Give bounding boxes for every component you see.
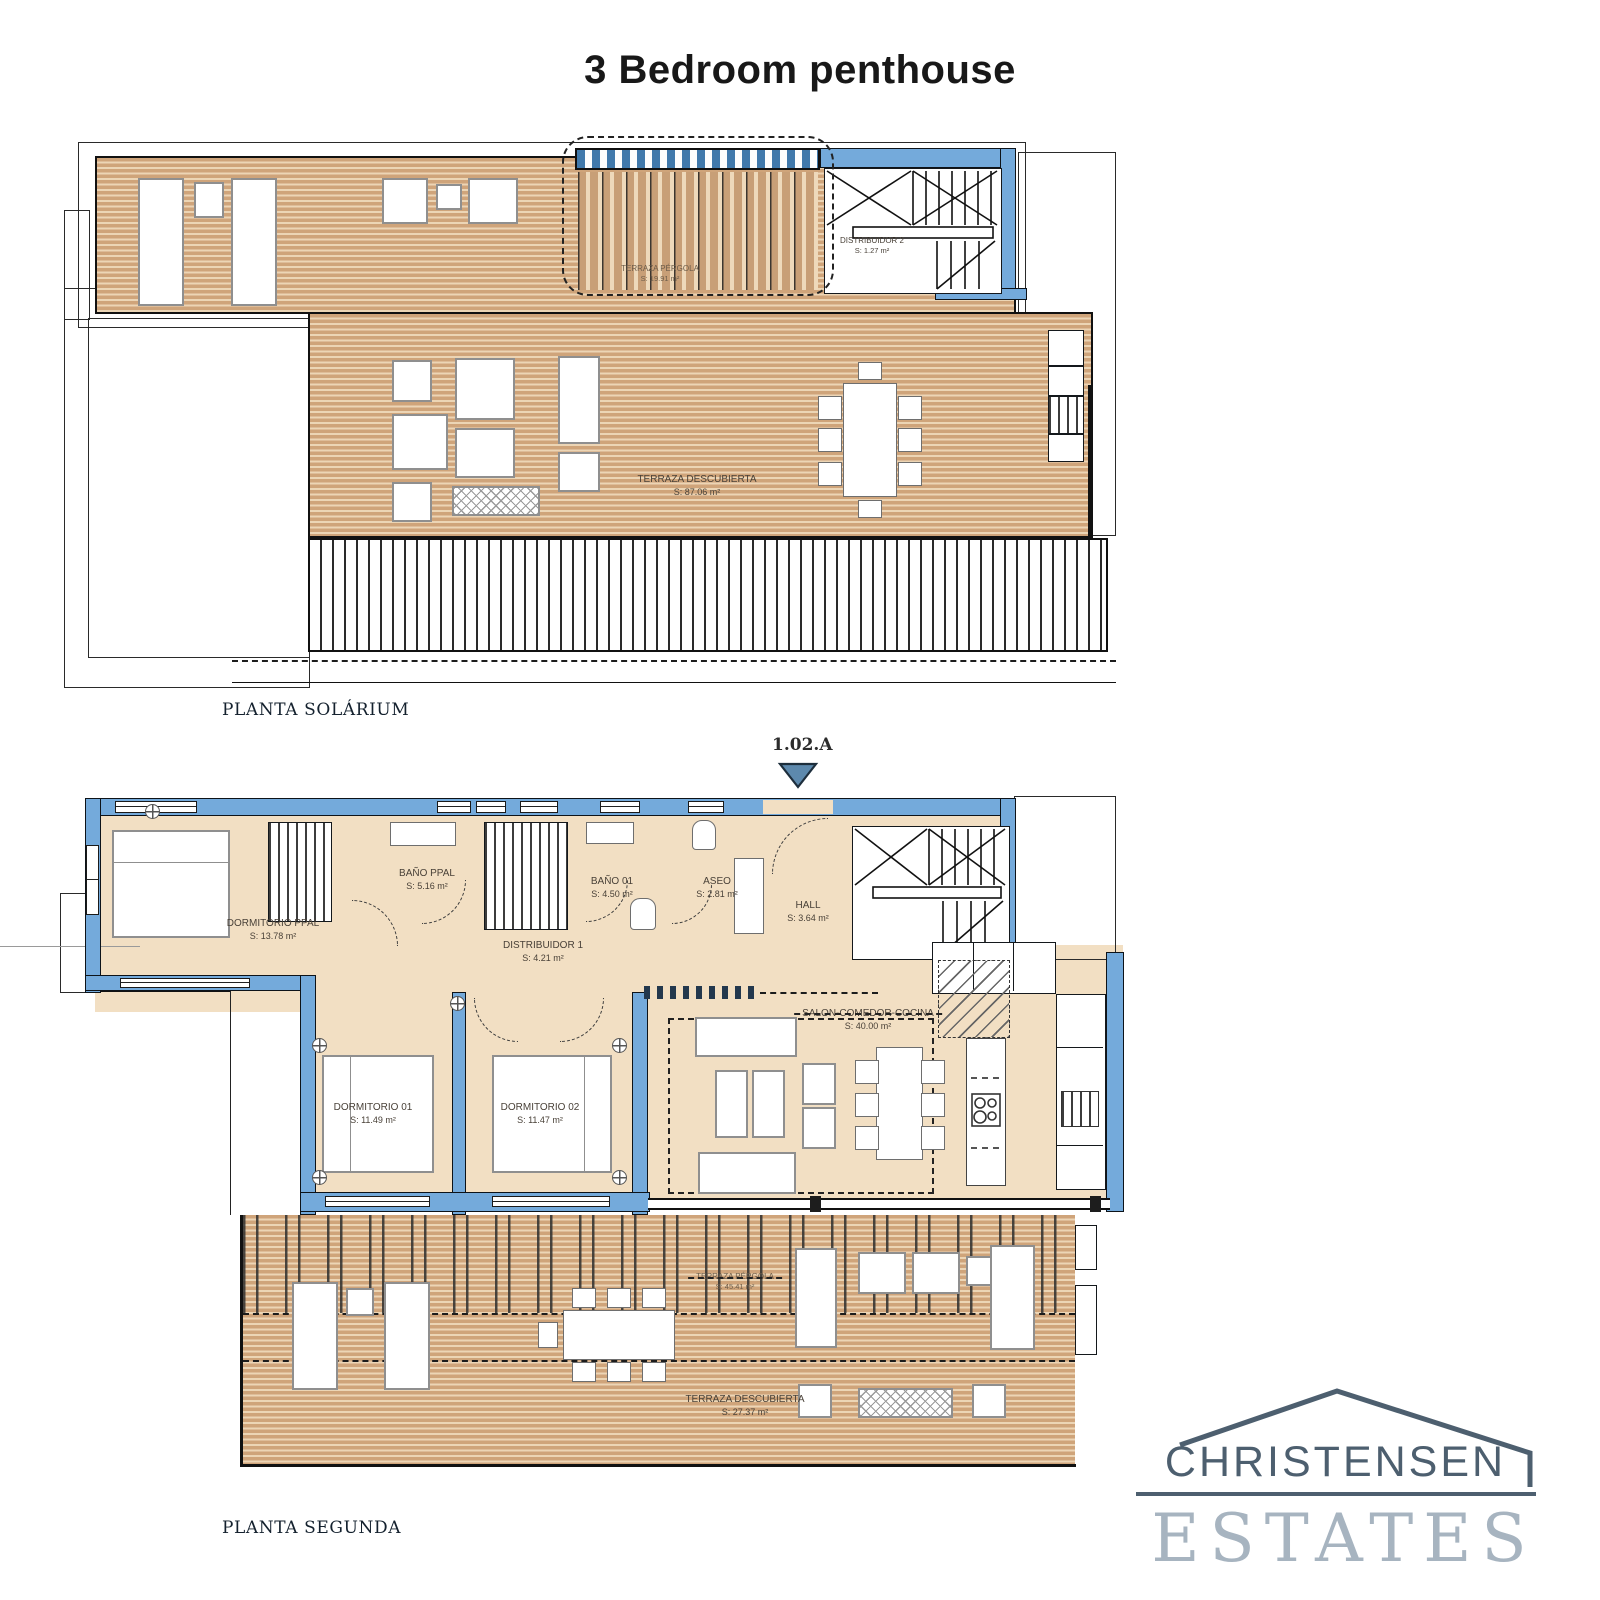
bed-sheet-line	[584, 1057, 585, 1171]
chair	[855, 1060, 879, 1084]
kitchen-counter	[1056, 994, 1106, 1190]
chair	[921, 1093, 945, 1117]
island-dash	[971, 1147, 999, 1149]
room-label-terraza-pergola: TERRAZA PÉRGOLA S: 19.91 m²	[621, 264, 699, 283]
window	[688, 801, 724, 813]
wall	[452, 992, 466, 1215]
plan-outline	[88, 991, 230, 992]
planter	[1075, 1285, 1097, 1355]
logo-name: CHRISTENSEN	[1128, 1438, 1543, 1487]
chair	[858, 362, 882, 380]
window	[600, 801, 640, 813]
staircase	[852, 826, 1010, 960]
outdoor-kitchen	[1048, 330, 1084, 462]
corner-marker	[612, 1038, 627, 1053]
balcony-outline	[60, 893, 88, 993]
sofa	[795, 1248, 837, 1348]
room-label-salon: SALON-COMEDOR-COCINA S: 40.00 m²	[802, 1008, 934, 1032]
facade-mullion	[1090, 1196, 1101, 1212]
room-label-distribuidor-1: DISTRIBUIDOR 1 S: 4.21 m²	[503, 940, 583, 964]
counter-divider	[1057, 1145, 1103, 1146]
wardrobe	[268, 822, 332, 922]
boundary-line	[232, 682, 1116, 683]
plan-outline	[1014, 796, 1116, 960]
room-label-terraza-pergola-2: TERRAZA PÉRGOLA S: 45.41 m²	[696, 1272, 774, 1291]
armchair	[392, 482, 432, 522]
chair	[855, 1126, 879, 1150]
window	[325, 1196, 430, 1207]
armchair	[558, 452, 600, 492]
coffee-table	[452, 486, 540, 516]
sink-counter	[390, 822, 456, 846]
room-label-aseo: ASEO S: 2.81 m²	[696, 876, 738, 900]
kitchen-island	[966, 1038, 1006, 1186]
armchair	[802, 1063, 836, 1105]
chair	[818, 428, 842, 452]
dining-table	[563, 1310, 675, 1360]
plan-caption-solarium: PLANTA SOLÁRIUM	[222, 700, 409, 720]
room-label-bano-ppal: BAÑO PPAL S: 5.16 m²	[399, 868, 455, 892]
room-label-hall: HALL S: 3.64 m²	[787, 900, 829, 924]
room-label-distribuidor-2: DISTRIBUIDOR 2 S: 1.27 m²	[840, 236, 904, 255]
armchair	[972, 1384, 1006, 1418]
armchair	[752, 1070, 785, 1138]
louvre-roof-band	[308, 538, 1108, 652]
armchair	[802, 1107, 836, 1149]
chair	[898, 396, 922, 420]
sun-lounger	[292, 1282, 338, 1390]
chair	[642, 1288, 666, 1308]
logo: CHRISTENSEN ESTATES	[1118, 1380, 1588, 1595]
sofa	[698, 1152, 796, 1194]
solarium-plan: DISTRIBUIDOR 2 S: 1.27 m²	[0, 0, 1600, 730]
side-table	[436, 184, 462, 210]
glass-facade	[648, 1198, 1110, 1210]
stair-flight-below	[938, 960, 1010, 1038]
pergola-louvre-row	[644, 986, 756, 999]
chair	[855, 1093, 879, 1117]
armchair	[392, 360, 432, 402]
window	[120, 978, 250, 988]
section-line	[0, 946, 140, 947]
chair	[898, 462, 922, 486]
toilet	[692, 820, 716, 850]
corner-marker	[312, 1038, 327, 1053]
plan-outline	[230, 991, 231, 1215]
sofa	[990, 1245, 1035, 1350]
coffee-table	[858, 1388, 953, 1418]
wall	[632, 992, 648, 1215]
grill	[1048, 396, 1084, 434]
armchair	[468, 178, 518, 224]
room-label-bano-01: BAÑO 01 S: 4.50 m²	[591, 876, 633, 900]
room-label-dormitorio-ppal: DORMITORIO PPAL S: 13.78 m²	[227, 918, 319, 942]
deck-edge-line	[1088, 385, 1091, 538]
window	[520, 801, 558, 813]
dining-table	[876, 1047, 923, 1160]
cabinet	[1048, 366, 1084, 396]
shower	[734, 858, 764, 934]
corner-marker	[312, 1170, 327, 1185]
stair-wall	[820, 148, 1016, 168]
sink-counter	[586, 822, 634, 844]
chair	[642, 1362, 666, 1382]
counter-divider	[1057, 1047, 1103, 1048]
armchair	[382, 178, 428, 224]
sun-lounger	[384, 1282, 430, 1390]
window	[437, 801, 471, 813]
dining-table	[843, 383, 897, 497]
window	[86, 845, 99, 915]
terrace-edge-bottom	[240, 1464, 1076, 1467]
corner-marker	[145, 804, 160, 819]
room-label-terraza-descubierta: TERRAZA DESCUBIERTA S: 87.06 m²	[637, 474, 756, 498]
corner-marker	[450, 996, 465, 1011]
staircase	[824, 168, 1002, 294]
planter	[1075, 1225, 1097, 1270]
sun-lounger	[231, 178, 277, 306]
chair	[818, 462, 842, 486]
appliance	[1061, 1091, 1099, 1127]
cabinet	[1048, 434, 1084, 462]
chair	[538, 1322, 558, 1348]
room-label-dormitorio-02: DORMITORIO 02 S: 11.47 m²	[501, 1102, 580, 1126]
chair	[818, 396, 842, 420]
boundary-dashed-line	[232, 660, 1116, 662]
plan-caption-segunda: PLANTA SEGUNDA	[222, 1518, 401, 1538]
bed	[112, 830, 230, 938]
chair	[572, 1288, 596, 1308]
unit-marker-label: 1.02.A	[772, 735, 833, 755]
armchair	[715, 1070, 748, 1138]
sofa	[695, 1017, 797, 1057]
chair	[898, 428, 922, 452]
plan-outline	[88, 318, 310, 658]
side-table	[346, 1288, 374, 1316]
door-opening	[763, 800, 833, 814]
facade-mullion	[810, 1196, 821, 1212]
bed-sheet-line	[114, 862, 228, 863]
hob-icon	[971, 1093, 1001, 1127]
chair	[607, 1288, 631, 1308]
stair-wall	[1000, 148, 1016, 298]
closet-divider	[1013, 943, 1014, 991]
chair	[858, 500, 882, 518]
floorplan-page: 3 Bedroom penthouse	[0, 0, 1600, 1600]
window	[476, 801, 506, 813]
corner-marker	[612, 1170, 627, 1185]
chair	[921, 1126, 945, 1150]
terrace-dash-line	[760, 992, 878, 994]
chair	[572, 1362, 596, 1382]
room-label-dormitorio-01: DORMITORIO 01 S: 11.49 m²	[334, 1102, 413, 1126]
logo-rule	[1136, 1492, 1536, 1496]
chair	[921, 1060, 945, 1084]
island-dash	[971, 1077, 999, 1079]
armchair	[858, 1252, 906, 1294]
sofa	[455, 358, 515, 420]
room-label-terraza-descubierta-2: TERRAZA DESCUBIERTA S: 27.37 m²	[685, 1394, 804, 1418]
toilet	[630, 898, 656, 930]
window	[492, 1196, 610, 1207]
side-table	[194, 182, 224, 218]
armchair	[912, 1252, 960, 1294]
sun-lounger	[138, 178, 184, 306]
armchair	[392, 414, 448, 470]
sofa	[455, 428, 515, 478]
sofa	[558, 356, 600, 444]
cabinet	[1048, 330, 1084, 366]
logo-type: ESTATES	[1118, 1500, 1570, 1577]
wardrobe	[484, 822, 568, 930]
exterior-wall-right	[1106, 952, 1124, 1212]
chair	[607, 1362, 631, 1382]
